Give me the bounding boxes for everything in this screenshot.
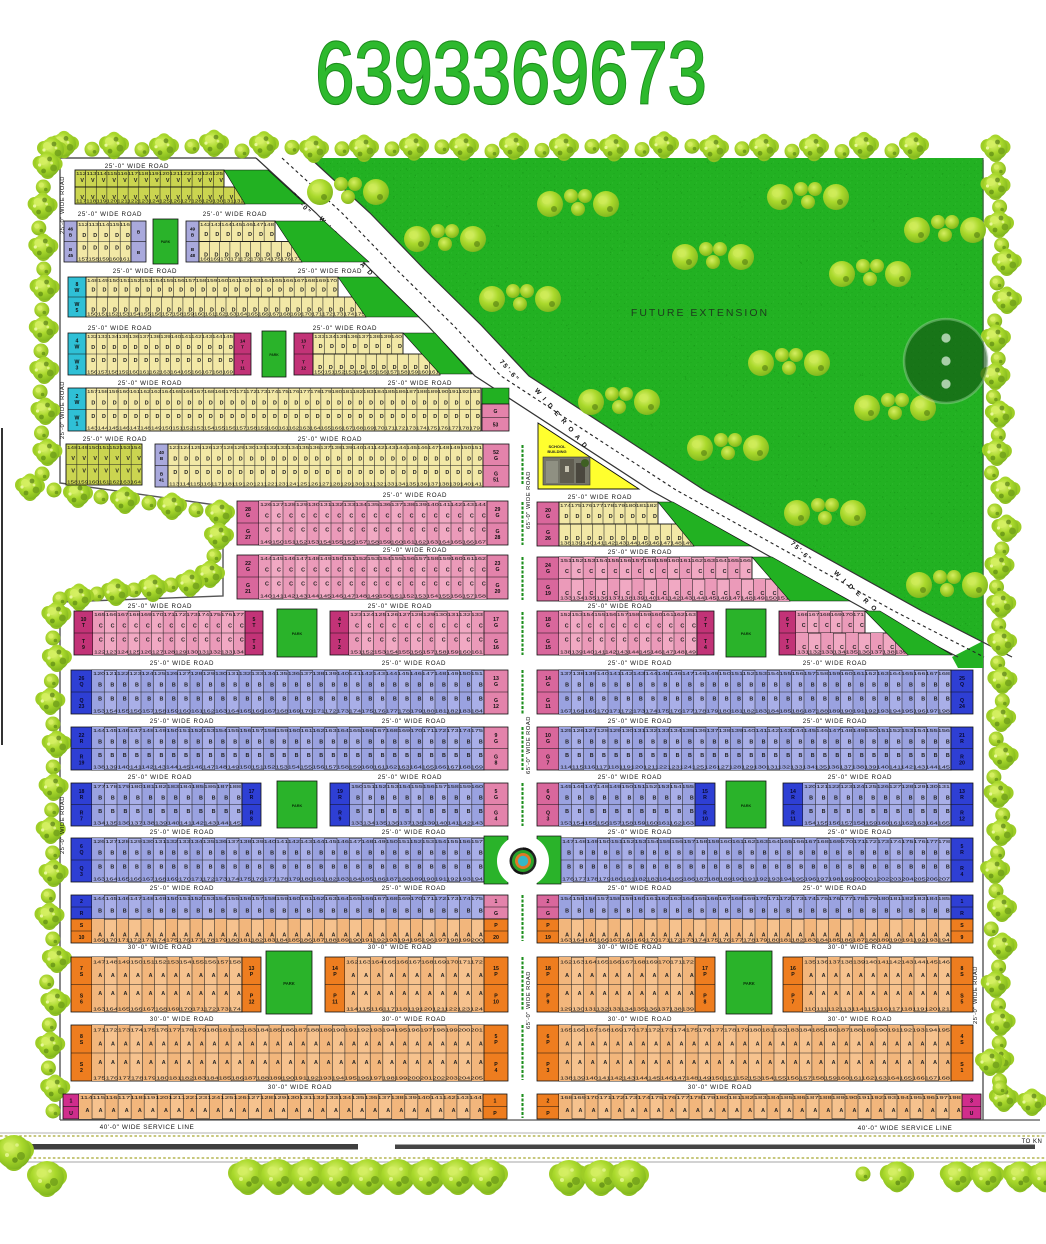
svg-text:PARK: PARK xyxy=(292,632,303,636)
svg-text:W: W xyxy=(75,288,80,294)
svg-text:120121122123124125126127128129: 120121122123124125126127128129130131 xyxy=(804,784,951,789)
svg-text:P: P xyxy=(546,1040,550,1046)
svg-text:25'-0" WIDE ROAD: 25'-0" WIDE ROAD xyxy=(118,380,182,387)
svg-text:W: W xyxy=(75,345,80,351)
svg-text:G: G xyxy=(495,567,499,573)
svg-text:114115116117118119120121122123: 1141151161171181191201211221231241251261… xyxy=(560,764,951,769)
svg-text:171172173174175176177178179180: 1711721731741751761771781791801811821831… xyxy=(93,1028,484,1033)
svg-text:177178179180181182183184185186: 177178179180181182183184185186187188 xyxy=(93,784,242,789)
svg-text:G: G xyxy=(494,409,498,415)
svg-text:1: 1 xyxy=(494,1098,497,1104)
svg-text:30'-0" WIDE ROAD: 30'-0" WIDE ROAD xyxy=(268,1084,332,1091)
svg-text:20: 20 xyxy=(959,760,965,766)
svg-text:4: 4 xyxy=(961,872,964,878)
svg-text:25'-0" WIDE ROAD: 25'-0" WIDE ROAD xyxy=(298,268,362,275)
svg-text:5: 5 xyxy=(76,308,79,314)
svg-text:A A A A A A A A A A A A: A A A A A A A A A A A A xyxy=(98,973,241,979)
svg-text:153154155156157158159160161162: 153154155156157158159160161162163 xyxy=(560,820,695,825)
svg-text:162163164165166167168169170171: 162163164165166167168169170171172 xyxy=(346,960,484,965)
svg-text:24: 24 xyxy=(959,704,965,710)
svg-text:G: G xyxy=(546,569,550,575)
svg-text:114115116117118119120121122123: 114115116117118119120121122123124 xyxy=(346,1006,484,1011)
svg-text:25'-0" WIDE ROAD: 25'-0" WIDE ROAD xyxy=(382,829,446,836)
svg-text:27: 27 xyxy=(245,535,251,541)
svg-text:G: G xyxy=(494,682,498,688)
svg-text:D D D D D D D D D D D D D D D: D D D D D D D D D D D D D D D D D D D D … xyxy=(173,456,482,462)
svg-text:123124125126127128129130131132: 1231241251261271281291301311321331341351… xyxy=(169,445,483,450)
svg-text:13: 13 xyxy=(301,339,307,344)
svg-text:25'-0" WIDE ROAD: 25'-0" WIDE ROAD xyxy=(973,966,979,1024)
svg-text:114115116117118119120121122123: 1141151161171181191201211221231241251261… xyxy=(80,1095,483,1100)
svg-text:25'-0" WIDE ROAD: 25'-0" WIDE ROAD xyxy=(313,325,377,332)
svg-text:B B B B B B B B B B B B B B B: B B B B B B B B B B B B B B B B B B B B … xyxy=(565,753,950,759)
svg-text:25'-0" WIDE ROAD: 25'-0" WIDE ROAD xyxy=(803,660,867,667)
svg-text:2: 2 xyxy=(80,1068,83,1074)
svg-text:B B B B B B B B B B B B B B B: B B B B B B B B B B B B B B B B B B B B … xyxy=(98,683,483,689)
svg-text:30'-0" WIDE ROAD: 30'-0" WIDE ROAD xyxy=(382,1016,446,1023)
svg-text:P: P xyxy=(546,972,550,978)
svg-text:Q: Q xyxy=(960,682,964,688)
svg-text:G: G xyxy=(546,514,550,520)
svg-text:6393369673: 6393369673 xyxy=(315,23,706,121)
svg-text:P: P xyxy=(494,972,498,978)
svg-text:B B B B B B B B B B B B B B B: B B B B B B B B B B B B B B B B B B B B … xyxy=(98,865,483,871)
svg-text:S: S xyxy=(960,972,964,978)
svg-text:S: S xyxy=(960,923,964,929)
svg-text:3: 3 xyxy=(80,872,83,878)
svg-text:12: 12 xyxy=(959,816,965,822)
svg-text:P: P xyxy=(791,972,795,978)
svg-text:175176177178179180181182183184: 1751761771781791801811821831841851861871… xyxy=(93,1075,484,1080)
svg-text:P: P xyxy=(493,1111,497,1117)
svg-text:1: 1 xyxy=(961,1068,964,1074)
svg-text:138139140141142143144145146147: 1381391401411421431441451461471481491501… xyxy=(560,1075,951,1080)
svg-text:BUILDING: BUILDING xyxy=(547,449,566,454)
svg-text:10: 10 xyxy=(702,816,708,822)
svg-text:129130131132133134135136137138: 129130131132133134135136137138139 xyxy=(560,1006,695,1011)
svg-text:R: R xyxy=(338,795,342,801)
svg-text:30'-0" WIDE ROAD: 30'-0" WIDE ROAD xyxy=(828,1016,892,1023)
svg-text:23: 23 xyxy=(79,704,85,710)
svg-text:25'-0" WIDE ROAD: 25'-0" WIDE ROAD xyxy=(828,774,892,781)
svg-text:156157158159160161162163164165: 1561571581591601611621631641651661671681… xyxy=(87,369,234,374)
svg-text:28: 28 xyxy=(495,535,501,541)
svg-text:25'-0" WIDE ROAD: 25'-0" WIDE ROAD xyxy=(203,211,267,218)
svg-text:8: 8 xyxy=(495,760,498,766)
svg-text:25'-0" WIDE ROAD: 25'-0" WIDE ROAD xyxy=(382,885,446,892)
svg-text:PARK: PARK xyxy=(741,632,752,636)
svg-text:B B B B B B B B B B B B: B B B B B B B B B B B B xyxy=(809,809,950,815)
svg-text:19: 19 xyxy=(79,760,85,766)
svg-text:B B B B B B B B B B B B B B B: B B B B B B B B B B B B B B B B B B B B … xyxy=(98,851,483,857)
svg-text:3: 3 xyxy=(970,1098,973,1104)
svg-text:25'-0" WIDE ROAD: 25'-0" WIDE ROAD xyxy=(150,829,214,836)
svg-text:P: P xyxy=(333,972,337,978)
svg-text:1: 1 xyxy=(76,421,79,427)
svg-text:25'-0" WIDE ROAD: 25'-0" WIDE ROAD xyxy=(60,796,66,854)
svg-text:30'-0" WIDE ROAD: 30'-0" WIDE ROAD xyxy=(828,944,892,951)
svg-text:D D D D D D D D D: D D D D D D D D D xyxy=(565,514,657,520)
svg-text:T: T xyxy=(302,345,305,350)
svg-text:151152153154155156157158159160: 151152153154155156157158159160161 xyxy=(350,649,484,654)
svg-text:C C C C C C C C C C C C C C C: C C C C C C C C C C C C C C C C xyxy=(565,569,751,575)
svg-text:2: 2 xyxy=(80,899,83,905)
svg-text:S: S xyxy=(960,1040,964,1046)
svg-text:U: U xyxy=(970,1111,974,1117)
svg-text:140141142143144145146147148149: 1401411421431441451461471481491501511521… xyxy=(260,593,487,598)
svg-text:48: 48 xyxy=(190,253,196,258)
svg-text:TO KN: TO KN xyxy=(1022,1139,1043,1145)
svg-text:11: 11 xyxy=(790,816,796,822)
svg-text:25'-0" WIDE ROAD: 25'-0" WIDE ROAD xyxy=(608,718,672,725)
svg-text:12: 12 xyxy=(301,366,307,371)
svg-text:2: 2 xyxy=(547,899,550,905)
svg-text:25'-0" WIDE ROAD: 25'-0" WIDE ROAD xyxy=(128,603,192,610)
svg-text:G: G xyxy=(494,739,498,745)
svg-text:126127128129130131132133134135: 1261271281291301311321331341351361371381… xyxy=(260,502,487,507)
svg-text:147148149150151152153154155156: 1471481491501511521531541551561571581591… xyxy=(562,839,951,844)
svg-text:C C C C C C C C C C C C: C C C C C C C C C C C C xyxy=(565,624,696,630)
svg-text:65'-0" WIDE ROAD: 65'-0" WIDE ROAD xyxy=(526,971,532,1029)
svg-text:30'-0" WIDE ROAD: 30'-0" WIDE ROAD xyxy=(598,944,662,951)
svg-text:A A A A A A A A A A A A: A A A A A A A A A A A A xyxy=(98,991,241,997)
svg-text:25'-0" WIDE ROAD: 25'-0" WIDE ROAD xyxy=(368,603,432,610)
svg-text:150151152153154155156157158159: 150151152153154155156157158159160 xyxy=(351,784,484,789)
svg-text:25'-0" WIDE ROAD: 25'-0" WIDE ROAD xyxy=(608,660,672,667)
svg-text:D D D D D: D D D D D xyxy=(82,233,130,239)
svg-text:133134135136137138139140141142: 133134135136137138139140141142143 xyxy=(351,820,484,825)
svg-text:134135136137138139140141142143: 134135136137138139140141142143144145 xyxy=(93,820,242,825)
svg-text:11: 11 xyxy=(240,366,245,371)
svg-text:137138139140141142143144145146: 1371381391401411421431441451461471481491… xyxy=(560,671,951,676)
svg-text:P: P xyxy=(546,923,550,929)
svg-text:B B B B B B B B B B B B B B B: B B B B B B B B B B B B B B B B B B B B … xyxy=(567,851,950,857)
svg-text:PARK: PARK xyxy=(161,240,171,244)
svg-text:25'-0" WIDE ROAD: 25'-0" WIDE ROAD xyxy=(378,774,442,781)
svg-text:25'-0" WIDE ROAD: 25'-0" WIDE ROAD xyxy=(568,494,632,501)
svg-text:157158159160161162163164165166: 1571581591601611621631641651661671681691… xyxy=(87,389,481,394)
svg-text:S: S xyxy=(80,972,84,978)
svg-text:153154155156157158159160161162: 1531541551561571581591601611621631641651… xyxy=(93,708,484,713)
svg-text:25'-0" WIDE ROAD: 25'-0" WIDE ROAD xyxy=(598,774,662,781)
svg-text:65'-0" WIDE ROAD: 65'-0" WIDE ROAD xyxy=(526,471,532,529)
svg-text:122123124125126127128129130131: 122123124125126127128129130131132133134 xyxy=(94,649,245,654)
svg-text:11: 11 xyxy=(545,704,551,710)
svg-text:25'-0" WIDE ROAD: 25'-0" WIDE ROAD xyxy=(105,163,169,170)
svg-text:7: 7 xyxy=(792,999,795,1005)
svg-text:25'-0" WIDE ROAD: 25'-0" WIDE ROAD xyxy=(803,718,867,725)
svg-text:D D D D D D D D: D D D D D D D D xyxy=(319,344,402,350)
svg-text:162163164165166167168169170171: 162163164165166167168169170171172 xyxy=(560,960,695,965)
svg-text:T: T xyxy=(302,360,305,365)
svg-text:R: R xyxy=(250,795,254,801)
svg-text:163164165166167168169170171172: 163164165166167168169170171172173174 xyxy=(93,1006,242,1011)
svg-text:49: 49 xyxy=(190,226,196,231)
svg-text:Q: Q xyxy=(79,850,83,856)
svg-text:10: 10 xyxy=(493,999,499,1005)
svg-text:C C C C C C C C C C C C: C C C C C C C C C C C C xyxy=(565,638,696,644)
svg-text:B B B B B B B B B B B B B B B: B B B B B B B B B B B B B B B B B B B B … xyxy=(567,865,950,871)
svg-text:174175176177178179180181182: 174175176177178179180181182 xyxy=(560,503,658,508)
svg-text:45: 45 xyxy=(68,253,74,258)
svg-text:PARK: PARK xyxy=(283,981,295,986)
svg-text:D D D D D D D D D D D D: D D D D D D D D D D D D xyxy=(565,536,693,542)
svg-text:3: 3 xyxy=(547,1068,550,1074)
svg-text:41: 41 xyxy=(159,477,165,482)
svg-text:R: R xyxy=(80,795,84,801)
svg-text:126127128129130131132133134135: 1261271281291301311321331341351361371381… xyxy=(93,839,484,844)
svg-text:144145146147148149150151152153: 1441451461471481491501511521531541551561… xyxy=(93,896,484,901)
svg-text:S: S xyxy=(80,923,84,929)
svg-text:25'-0" WIDE ROAD: 25'-0" WIDE ROAD xyxy=(608,885,672,892)
svg-text:1: 1 xyxy=(70,1098,73,1104)
svg-text:152153154155156157158159160161: 152153154155156157158159160161162163 xyxy=(560,612,697,617)
svg-text:166167168169170171: 166167168169170171 xyxy=(797,612,865,617)
svg-text:144145146147148149150151152153: 1441451461471481491501511521531541551561… xyxy=(260,556,487,561)
svg-text:25'-0" WIDE ROAD: 25'-0" WIDE ROAD xyxy=(298,436,362,443)
svg-text:B B B B B B B B B B B B B B B: B B B B B B B B B B B B B B B B B B B B … xyxy=(98,753,483,759)
svg-text:U: U xyxy=(69,1111,73,1117)
svg-text:26: 26 xyxy=(545,536,551,542)
svg-text:135136137138139140141142143144: 135136137138139140141142143144145146 xyxy=(804,960,951,965)
svg-text:12: 12 xyxy=(249,999,255,1005)
svg-text:25'-0" WIDE ROAD: 25'-0" WIDE ROAD xyxy=(828,829,892,836)
svg-text:110111112113114115116117118119: 110111112113114115116117118119120121 xyxy=(804,1006,951,1011)
svg-text:51: 51 xyxy=(493,477,499,483)
svg-text:40'-0" WIDE SERVICE LINE: 40'-0" WIDE SERVICE LINE xyxy=(858,1125,953,1132)
svg-text:1: 1 xyxy=(961,899,964,905)
svg-text:PARK: PARK xyxy=(741,804,752,808)
svg-text:B B B B B B B B B B B B: B B B B B B B B B B B B xyxy=(809,795,950,801)
svg-text:15: 15 xyxy=(545,645,551,651)
svg-text:148149150151152153154155156157: 1481491501511521531541551561571581591601… xyxy=(87,278,338,283)
svg-text:P: P xyxy=(494,1040,498,1046)
svg-text:T: T xyxy=(241,360,244,365)
svg-text:25'-0" WIDE ROAD: 25'-0" WIDE ROAD xyxy=(608,829,672,836)
svg-text:25'-0" WIDE ROAD: 25'-0" WIDE ROAD xyxy=(128,774,192,781)
svg-text:R: R xyxy=(960,850,964,856)
svg-text:112113114115116: 112113114115116 xyxy=(78,222,131,227)
svg-text:4: 4 xyxy=(495,1068,498,1074)
svg-text:3: 3 xyxy=(253,645,256,651)
svg-text:163164165166167168169170171172: 1631641651661671681691701711721731741751… xyxy=(93,876,484,881)
svg-text:5: 5 xyxy=(786,645,789,651)
svg-text:8: 8 xyxy=(704,999,707,1005)
svg-text:142143144145146147148: 142143144145146147148 xyxy=(200,222,275,227)
svg-text:25'-0" WIDE ROAD: 25'-0" WIDE ROAD xyxy=(60,176,66,234)
svg-text:147148149150151152153154155156: 147148149150151152153154155156157158 xyxy=(93,960,242,965)
svg-text:143144145146147148149150151152: 1431441451461471481491501511521531541551… xyxy=(87,425,481,430)
svg-text:B B B B B B B B B B B B: B B B B B B B B B B B B xyxy=(98,795,241,801)
svg-text:P: P xyxy=(703,972,707,978)
svg-text:20: 20 xyxy=(493,935,499,941)
svg-text:G: G xyxy=(246,567,250,573)
svg-text:138139140141142143144145146147: 1381391401411421431441451461471481491501… xyxy=(93,764,484,769)
svg-text:154155156157158159160161162163: 1541551561571581591601611621631641651661… xyxy=(560,896,951,901)
svg-text:S: S xyxy=(80,1040,84,1046)
svg-text:T: T xyxy=(241,345,244,350)
svg-text:G: G xyxy=(494,456,498,462)
svg-text:B B B B B B B B B B B B: B B B B B B B B B B B B xyxy=(98,809,241,815)
svg-text:4: 4 xyxy=(495,816,498,822)
svg-text:R: R xyxy=(960,795,964,801)
svg-text:7: 7 xyxy=(547,760,550,766)
svg-text:A A A A A A A A A A A A A A A: A A A A A A A A A A A A A A A A A A A A … xyxy=(98,932,483,938)
svg-text:9: 9 xyxy=(547,999,550,1005)
svg-text:165166167168169170171172173174: 1651661671681691701711721731741751761771… xyxy=(560,1028,951,1033)
svg-text:9: 9 xyxy=(82,645,85,651)
svg-text:125126127128129130131132133134: 1251261271281291301311321331341351361371… xyxy=(560,728,951,733)
svg-text:P: P xyxy=(494,923,498,929)
svg-text:149150151152153154155156157158: 1491501511521531541551561571581591601611… xyxy=(260,539,487,544)
svg-text:G: G xyxy=(546,739,550,745)
svg-text:R: R xyxy=(80,911,84,917)
svg-text:7: 7 xyxy=(80,816,83,822)
svg-text:25'-0" WIDE ROAD: 25'-0" WIDE ROAD xyxy=(588,603,652,610)
svg-text:2: 2 xyxy=(338,645,341,651)
svg-text:1: 1 xyxy=(495,899,498,905)
svg-text:B B B B B B B B B B B B B B B: B B B B B B B B B B B B B B B B B B B B … xyxy=(565,739,950,745)
svg-text:G: G xyxy=(546,623,550,629)
svg-text:46: 46 xyxy=(68,226,74,231)
svg-text:9: 9 xyxy=(961,935,964,941)
svg-text:25'-0" WIDE ROAD: 25'-0" WIDE ROAD xyxy=(608,549,672,556)
svg-text:G: G xyxy=(494,795,498,801)
svg-text:2: 2 xyxy=(547,1098,550,1104)
svg-text:B B B B B B B B B B B B B B B: B B B B B B B B B B B B B B B B B B B B … xyxy=(98,697,483,703)
svg-text:3: 3 xyxy=(76,366,79,372)
svg-text:132133134135136137138139140141: 1321331341351361371381391401411421431441… xyxy=(87,334,234,339)
svg-text:R: R xyxy=(960,739,964,745)
svg-text:16: 16 xyxy=(493,645,499,651)
svg-text:Q: Q xyxy=(546,795,550,801)
svg-text:145146147148149150151152153154: 145146147148149150151152153154155 xyxy=(560,784,695,789)
svg-text:112113114115116117118119120121: 1121131141151161171181191201211221231241… xyxy=(76,171,224,176)
svg-text:148149150151152153154: 148149150151152153154 xyxy=(67,445,142,450)
svg-text:R: R xyxy=(791,795,795,801)
svg-text:40'-0" WIDE SERVICE LINE: 40'-0" WIDE SERVICE LINE xyxy=(100,1124,195,1131)
svg-text:D D D D D D D D D D D D D D D: D D D D D D D D D D D D D D D D D D D D … xyxy=(173,470,482,476)
svg-text:G: G xyxy=(494,911,498,917)
svg-text:158159160161162163164: 158159160161162163164 xyxy=(67,479,142,484)
svg-text:A A A A A A A A A A A A: A A A A A A A A A A A A xyxy=(809,973,950,979)
svg-text:B B B B B B B B B B B B B B B: B B B B B B B B B B B B B B B B B B B B … xyxy=(98,908,483,914)
svg-text:G: G xyxy=(494,623,498,629)
svg-text:25'-0" WIDE ROAD: 25'-0" WIDE ROAD xyxy=(150,885,214,892)
svg-text:D D D D D D D D D D D D D D D: D D D D D D D D D D D D D D D D D D D D … xyxy=(91,287,337,293)
svg-text:D D D D D: D D D D D xyxy=(82,245,130,251)
svg-text:25'-0" WIDE ROAD: 25'-0" WIDE ROAD xyxy=(383,492,447,499)
svg-text:G: G xyxy=(246,513,250,519)
svg-text:113114115116117118119120121122: 1131141151161171181191201211221231241251… xyxy=(169,481,483,486)
svg-text:154155156157158159160161162163: 154155156157158159160161162163164165 xyxy=(804,820,951,825)
svg-text:165166167168169170171172173174: 165166167168169170171172173174175176177 xyxy=(94,612,245,617)
svg-text:A A A A A A A A A A A A A A A: A A A A A A A A A A A A A A A A A A A A … xyxy=(565,932,950,938)
svg-text:120121122123124125126127128129: 1201211221231241251261271281291301311321… xyxy=(93,671,484,676)
svg-text:133134135136137138139140: 133134135136137138139140 xyxy=(314,334,403,339)
svg-text:PARK: PARK xyxy=(269,353,279,357)
svg-text:157158159160161: 157158159160161 xyxy=(78,256,131,261)
svg-text:B B B B B B B B B B B B B B B: B B B B B B B B B B B B B B B B B B B B … xyxy=(565,697,950,703)
svg-text:176177178179180181182183184185: 1761771781791801811821831841851861871881… xyxy=(562,876,951,881)
svg-text:25'-0" WIDE ROAD: 25'-0" WIDE ROAD xyxy=(803,885,867,892)
svg-text:12: 12 xyxy=(493,704,499,710)
svg-text:Q: Q xyxy=(79,682,83,688)
svg-text:19: 19 xyxy=(545,935,551,941)
svg-text:25'-0" WIDE ROAD: 25'-0" WIDE ROAD xyxy=(382,660,446,667)
svg-text:151152153154155156157158159160: 1511521531541551561571581591601611621631… xyxy=(560,558,752,563)
svg-text:53: 53 xyxy=(493,422,499,428)
svg-text:5: 5 xyxy=(961,999,964,1005)
svg-text:167168169170171172173174175176: 1671681691701711721731741751761771781791… xyxy=(560,708,951,713)
svg-text:65'-0" WIDE ROAD: 65'-0" WIDE ROAD xyxy=(526,716,532,774)
svg-text:3: 3 xyxy=(547,816,550,822)
svg-text:25'-0" WIDE ROAD: 25'-0" WIDE ROAD xyxy=(88,325,152,332)
svg-text:20: 20 xyxy=(495,589,501,595)
svg-text:G: G xyxy=(495,513,499,519)
svg-text:V V V V V V V V V V V V V V V: V V V V V V V V V V V V V V V V xyxy=(80,195,244,201)
svg-text:R: R xyxy=(960,911,964,917)
svg-text:B B B B B B B B B B B B B B B: B B B B B B B B B B B B B B B B B B B B … xyxy=(565,908,950,914)
svg-text:25'-0" WIDE ROAD: 25'-0" WIDE ROAD xyxy=(150,660,214,667)
svg-text:8: 8 xyxy=(250,816,253,822)
svg-text:R: R xyxy=(80,739,84,745)
svg-text:19: 19 xyxy=(545,591,551,597)
svg-text:6: 6 xyxy=(80,999,83,1005)
svg-text:25'-0" WIDE ROAD: 25'-0" WIDE ROAD xyxy=(388,380,452,387)
svg-text:W: W xyxy=(75,400,80,406)
svg-text:G: G xyxy=(546,911,550,917)
svg-text:25'-0" WIDE ROAD: 25'-0" WIDE ROAD xyxy=(382,718,446,725)
svg-text:25'-0" WIDE ROAD: 25'-0" WIDE ROAD xyxy=(383,547,447,554)
svg-text:30'-0" WIDE ROAD: 30'-0" WIDE ROAD xyxy=(608,1016,672,1023)
svg-text:10: 10 xyxy=(79,935,85,941)
svg-text:B B B B B B B B B B B B B B B: B B B B B B B B B B B B B B B B B B B B … xyxy=(565,683,950,689)
svg-text:PARK: PARK xyxy=(743,981,755,986)
svg-text:30'-0" WIDE ROAD: 30'-0" WIDE ROAD xyxy=(688,1084,752,1091)
svg-text:25'-0" WIDE ROAD: 25'-0" WIDE ROAD xyxy=(83,436,147,443)
svg-text:168169170171172173174175176177: 1681691701711721731741751761771781791801… xyxy=(560,1095,962,1100)
svg-text:30'-0" WIDE ROAD: 30'-0" WIDE ROAD xyxy=(368,944,432,951)
svg-text:40: 40 xyxy=(159,450,165,455)
svg-text:A A A A A A A A A A A A: A A A A A A A A A A A A xyxy=(809,991,950,997)
svg-text:123124125126127128129130131132: 123124125126127128129130131132133 xyxy=(350,612,484,617)
svg-text:G: G xyxy=(546,682,550,688)
svg-text:P: P xyxy=(546,1111,550,1117)
svg-text:R: R xyxy=(703,795,707,801)
svg-text:C C C C C C C C C: C C C C C C C C C xyxy=(802,645,907,651)
svg-text:PARK: PARK xyxy=(292,804,303,808)
svg-text:144145146147148149150151152153: 1441451461471481491501511521531541551561… xyxy=(93,728,484,733)
svg-text:B B B B B B B B B B B B B B B: B B B B B B B B B B B B B B B B B B B B … xyxy=(98,739,483,745)
svg-text:25'-0" WIDE ROAD: 25'-0" WIDE ROAD xyxy=(150,718,214,725)
svg-text:138139140141142143144145146147: 138139140141142143144145146147148149 xyxy=(560,649,697,654)
svg-text:D D D D D D D D D D D D: D D D D D D D D D D D D xyxy=(318,365,439,371)
svg-text:30'-0" WIDE ROAD: 30'-0" WIDE ROAD xyxy=(128,944,192,951)
svg-text:30'-0" WIDE ROAD: 30'-0" WIDE ROAD xyxy=(150,1016,214,1023)
svg-text:25'-0" WIDE ROAD: 25'-0" WIDE ROAD xyxy=(113,268,177,275)
svg-text:4: 4 xyxy=(704,645,707,651)
svg-text:FUTURE EXTENSION: FUTURE EXTENSION xyxy=(631,307,769,319)
svg-text:14: 14 xyxy=(240,339,246,344)
svg-text:25'-0" WIDE ROAD: 25'-0" WIDE ROAD xyxy=(78,211,142,218)
svg-text:21: 21 xyxy=(245,589,251,595)
svg-text:11: 11 xyxy=(332,999,338,1005)
svg-text:P: P xyxy=(250,972,254,978)
svg-text:9: 9 xyxy=(339,816,342,822)
svg-text:25'-0" WIDE ROAD: 25'-0" WIDE ROAD xyxy=(60,381,66,439)
